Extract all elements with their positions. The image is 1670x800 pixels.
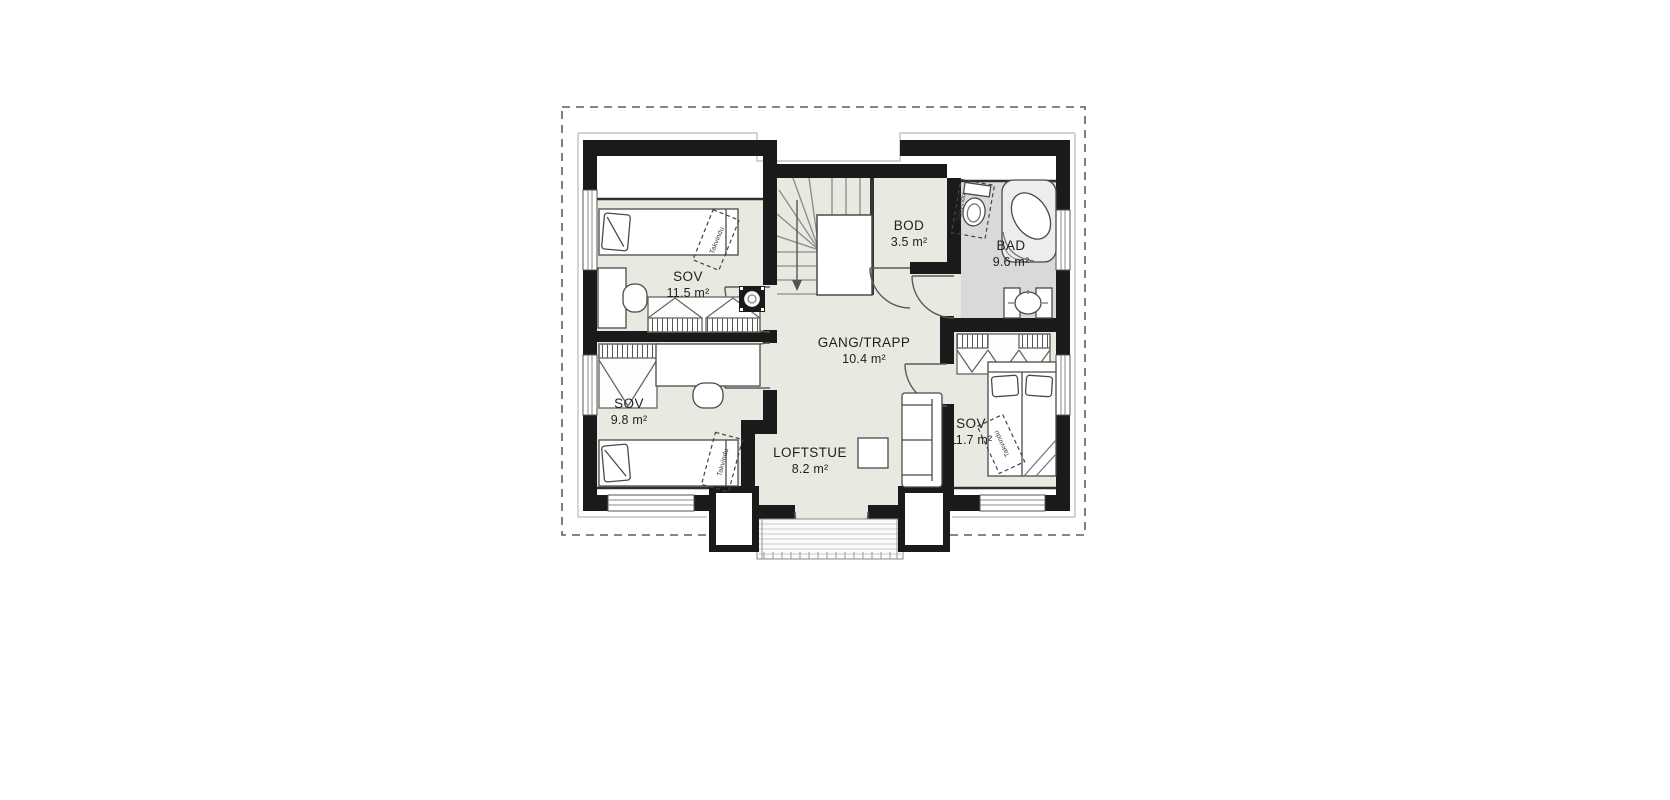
svg-text:BOD: BOD	[894, 218, 924, 233]
stair-void	[817, 215, 872, 295]
dormer-window	[898, 486, 950, 552]
floor-door-gap	[763, 285, 777, 330]
svg-text:9.8 m²: 9.8 m²	[611, 413, 648, 427]
desk-icon	[656, 344, 760, 386]
double-bed-icon	[988, 362, 1056, 476]
window	[583, 190, 597, 270]
window	[583, 355, 597, 415]
table-icon	[858, 438, 888, 468]
floor-door-gap	[795, 505, 868, 519]
window	[608, 495, 694, 511]
chair-icon	[623, 284, 647, 312]
floor-plan-page: Takvindu Takvindu Takvindu Takvindu SOV …	[0, 0, 1670, 800]
svg-text:3.5 m²: 3.5 m²	[891, 235, 928, 249]
chair-icon	[693, 383, 723, 408]
chimney-icon	[739, 286, 765, 312]
bed-icon	[599, 440, 738, 486]
svg-text:10.4 m²: 10.4 m²	[842, 352, 886, 366]
window	[1056, 355, 1070, 415]
svg-text:11.5 m²: 11.5 m²	[667, 286, 710, 300]
desk-icon	[598, 268, 626, 328]
sink-icon	[1004, 288, 1052, 318]
svg-text:SOV: SOV	[614, 396, 644, 411]
svg-text:SOV: SOV	[956, 416, 986, 431]
window	[1056, 210, 1070, 270]
window	[980, 495, 1045, 511]
svg-text:BAD: BAD	[997, 238, 1026, 253]
svg-text:SOV: SOV	[673, 269, 703, 284]
svg-text:8.2 m²: 8.2 m²	[792, 462, 829, 476]
sofa-icon	[902, 393, 942, 487]
svg-text:9.6 m²: 9.6 m²	[993, 255, 1030, 269]
svg-text:LOFTSTUE: LOFTSTUE	[773, 445, 847, 460]
floor-door-gap	[940, 274, 961, 318]
svg-text:11.7 m²: 11.7 m²	[950, 433, 993, 447]
balcony-deck	[757, 519, 903, 559]
svg-text:GANG/TRAPP: GANG/TRAPP	[818, 335, 911, 350]
dormer-window	[709, 486, 759, 552]
floor-door-gap	[763, 343, 777, 390]
floor-plan-canvas: Takvindu Takvindu Takvindu Takvindu SOV …	[0, 0, 1670, 800]
